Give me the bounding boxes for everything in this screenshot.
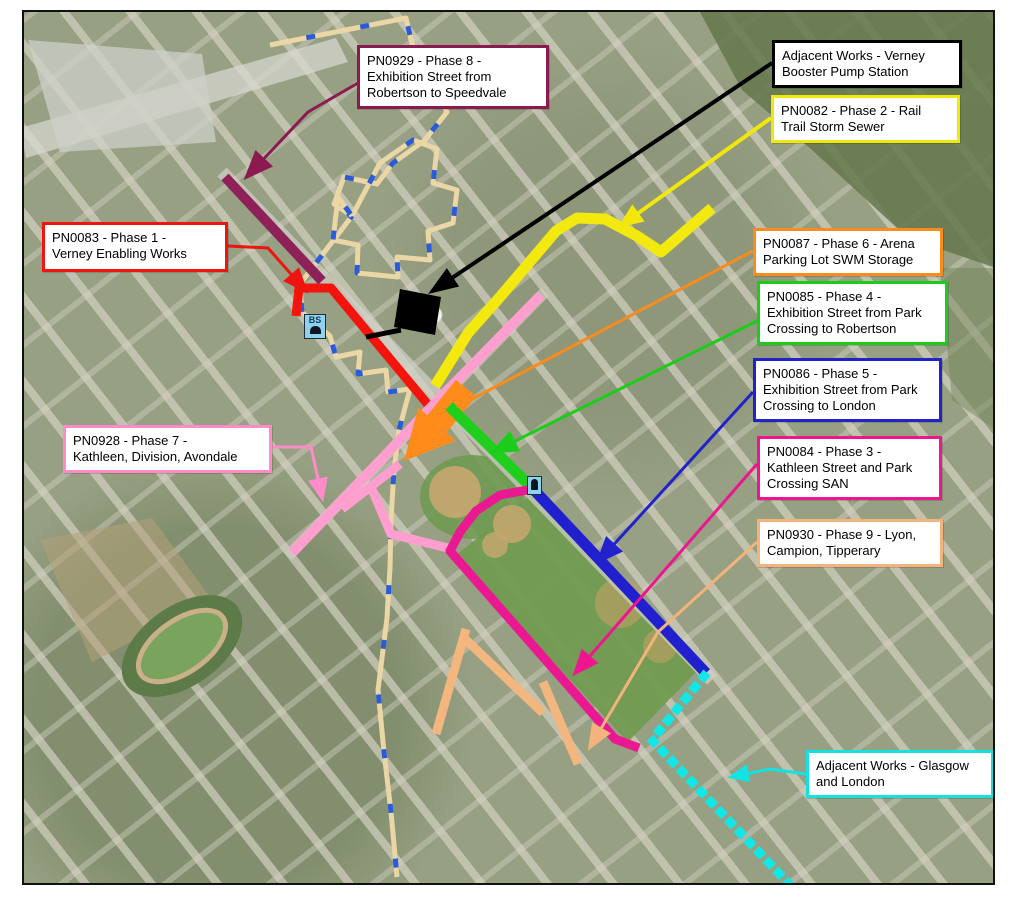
adjacent-glasgow-leader-arrow xyxy=(727,764,750,782)
callout-phase7: PN0928 - Phase 7 - Kathleen, Division, A… xyxy=(63,425,272,473)
booster-station-icon: BS xyxy=(304,314,326,339)
route-adjacent-glasgow-london xyxy=(652,676,790,883)
callout-adjacent-glasgow: Adjacent Works - Glasgow and London xyxy=(806,750,994,798)
callout-adjacent-verney: Adjacent Works - Verney Booster Pump Sta… xyxy=(772,40,962,88)
phase2-leader-line xyxy=(630,118,771,219)
callout-phase5: PN0086 - Phase 5 - Exhibition Street fro… xyxy=(753,358,942,422)
route-phase8-exhibition-north xyxy=(225,177,322,281)
callout-phase8: PN0929 - Phase 8 - Exhibition Street fro… xyxy=(357,45,549,109)
callout-phase1: PN0083 - Phase 1 - Verney Enabling Works xyxy=(42,222,228,272)
callout-phase3: PN0084 - Phase 3 - Kathleen Street and P… xyxy=(757,436,942,500)
callout-phase4: PN0085 - Phase 4 - Exhibition Street fro… xyxy=(757,281,948,345)
phase5-leader-line xyxy=(607,392,753,552)
park-crossing-icon xyxy=(527,476,542,495)
map-canvas: BS PN0929 - Phase 8 - Exhibition Street … xyxy=(22,10,995,885)
callout-phase2: PN0082 - Phase 2 - Rail Trail Storm Sewe… xyxy=(771,95,960,143)
adjacent-glasgow-leader-line xyxy=(740,769,806,775)
booster-station-icon-label: BS xyxy=(309,316,322,325)
booster-station-icon-glyph xyxy=(310,326,321,334)
phase2-leader-arrow xyxy=(617,204,644,228)
park-crossing-icon-glyph xyxy=(531,479,538,490)
callout-phase6: PN0087 - Phase 6 - Arena Parking Lot SWM… xyxy=(753,228,943,276)
phase8-leader-line xyxy=(256,83,358,167)
phase7-leader-arrow xyxy=(308,476,328,502)
aerial-feature xyxy=(482,532,508,558)
adjacent-verney-leader-arrow xyxy=(428,268,459,294)
phase1-leader-line xyxy=(228,246,298,282)
route-phase9-lyon xyxy=(436,629,466,734)
aerial-feature xyxy=(28,40,216,152)
callout-phase9: PN0930 - Phase 9 - Lyon, Campion, Tipper… xyxy=(757,519,943,567)
verney-booster-pump-station xyxy=(394,289,441,335)
